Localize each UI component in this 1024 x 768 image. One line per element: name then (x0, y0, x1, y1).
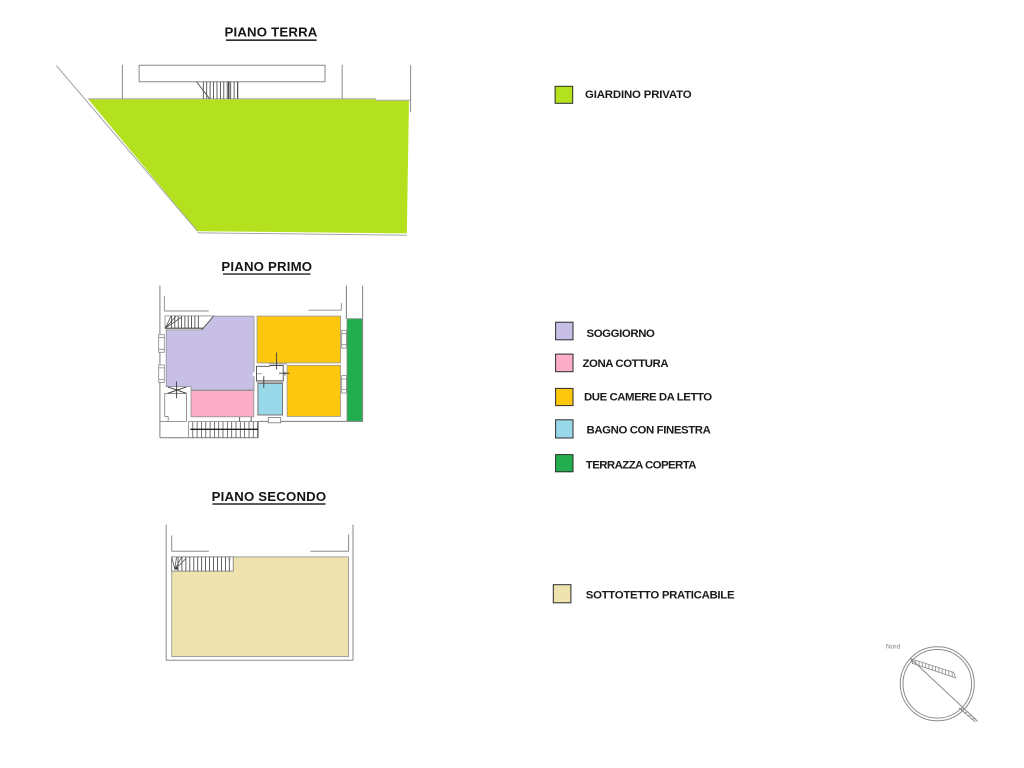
svg-text:GIARDINO PRIVATO: GIARDINO PRIVATO (585, 89, 692, 101)
svg-text:BAGNO CON FINESTRA: BAGNO CON FINESTRA (587, 425, 711, 437)
svg-text:SOGGIORNO: SOGGIORNO (587, 328, 656, 340)
svg-text:SOTTOTETTO PRATICABILE: SOTTOTETTO PRATICABILE (586, 589, 735, 601)
svg-text:TERRAZZA COPERTA: TERRAZZA COPERTA (586, 460, 696, 472)
svg-text:ZONA COTTURA: ZONA COTTURA (583, 358, 669, 370)
svg-text:PIANO TERRA: PIANO TERRA (224, 25, 317, 40)
svg-text:PIANO PRIMO: PIANO PRIMO (221, 259, 312, 274)
svg-text:DUE CAMERE DA LETTO: DUE CAMERE DA LETTO (584, 391, 712, 403)
svg-text:PIANO SECONDO: PIANO SECONDO (212, 489, 327, 504)
svg-text:Nord: Nord (886, 644, 900, 651)
